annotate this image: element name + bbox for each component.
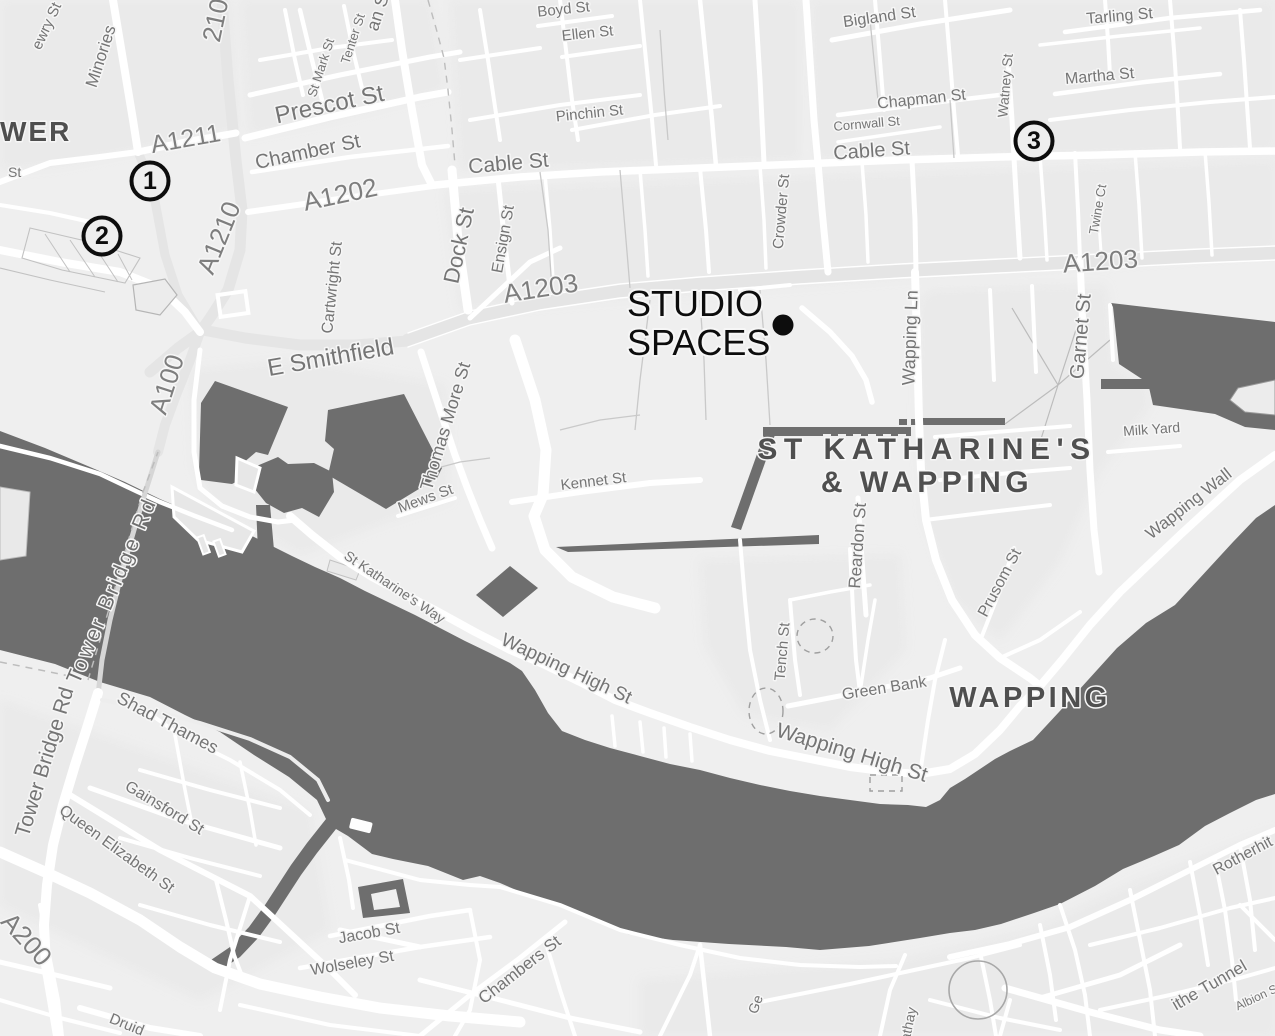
svg-text:St: St bbox=[8, 164, 21, 180]
svg-text:WER: WER bbox=[0, 116, 71, 147]
svg-text:Wapping Ln: Wapping Ln bbox=[898, 290, 921, 386]
svg-text:3: 3 bbox=[1027, 127, 1041, 155]
svg-text:1: 1 bbox=[143, 167, 157, 195]
svg-text:A1203: A1203 bbox=[1062, 243, 1139, 278]
svg-text:WAPPING: WAPPING bbox=[949, 682, 1110, 714]
svg-text:STUDIO: STUDIO bbox=[627, 283, 763, 324]
svg-text:ST KATHARINE'S: ST KATHARINE'S bbox=[757, 433, 1096, 466]
svg-text:2: 2 bbox=[95, 222, 109, 250]
svg-text:& WAPPING: & WAPPING bbox=[821, 466, 1033, 499]
svg-text:SPACES: SPACES bbox=[627, 322, 770, 363]
